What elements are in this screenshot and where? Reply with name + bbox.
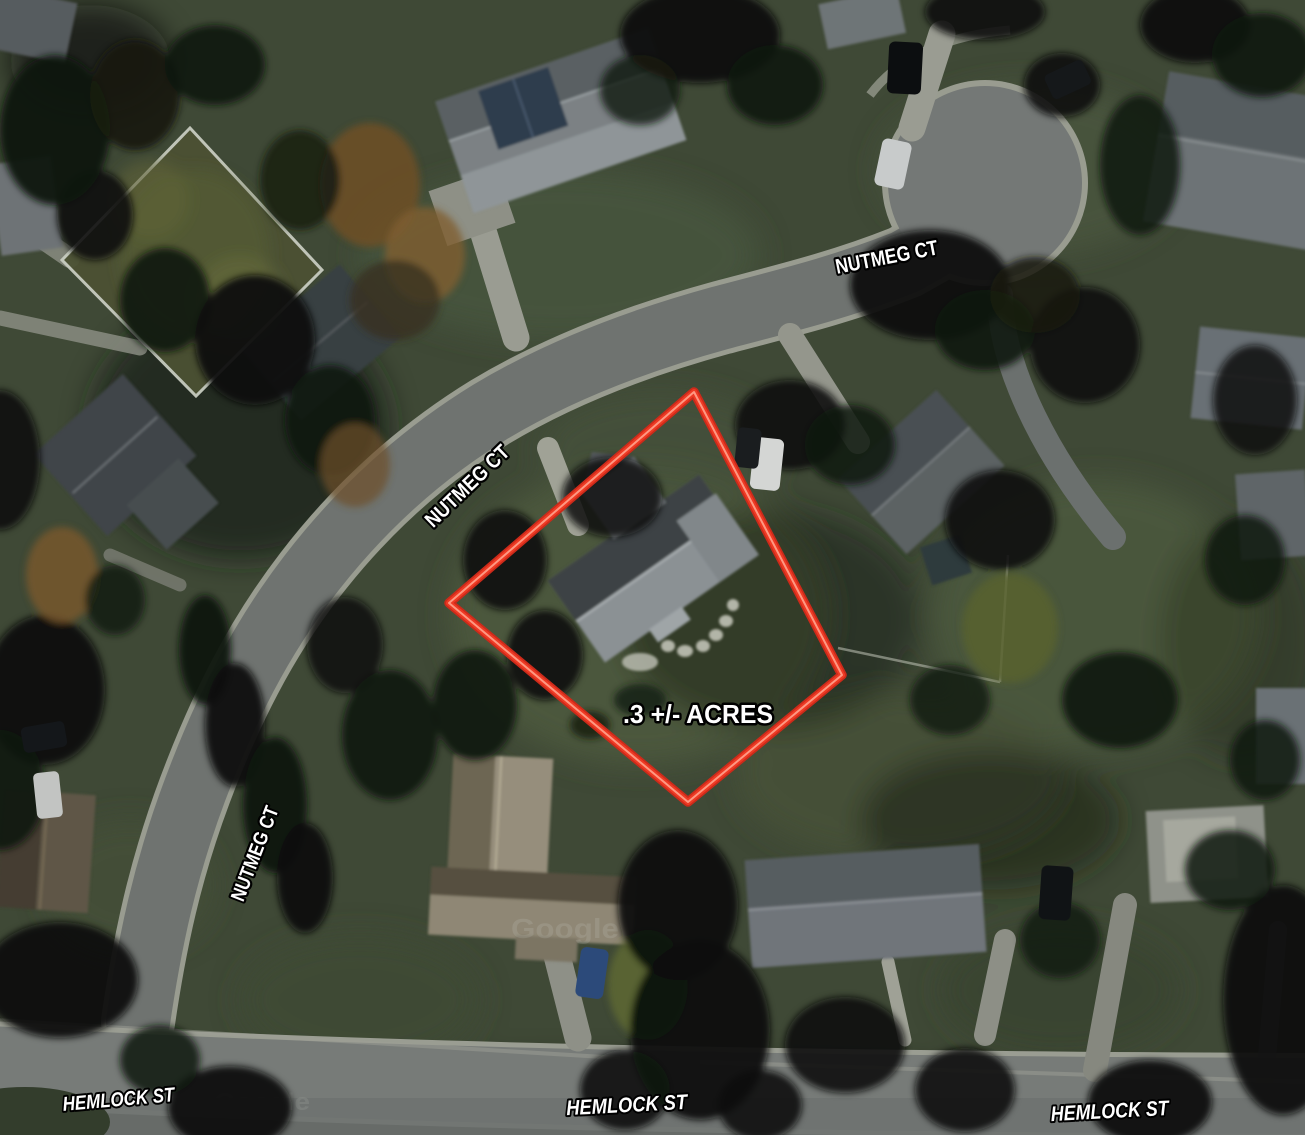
satellite-map-screenshot: Google Google bbox=[0, 0, 1305, 1135]
lot-acreage-label: .3 +/- ACRES bbox=[623, 699, 773, 729]
aerial-imagery: Google Google bbox=[0, 0, 1305, 1135]
watermark-roof: Google bbox=[511, 913, 619, 944]
parked-car-dark bbox=[887, 41, 924, 95]
house-bottom-right bbox=[745, 844, 987, 968]
